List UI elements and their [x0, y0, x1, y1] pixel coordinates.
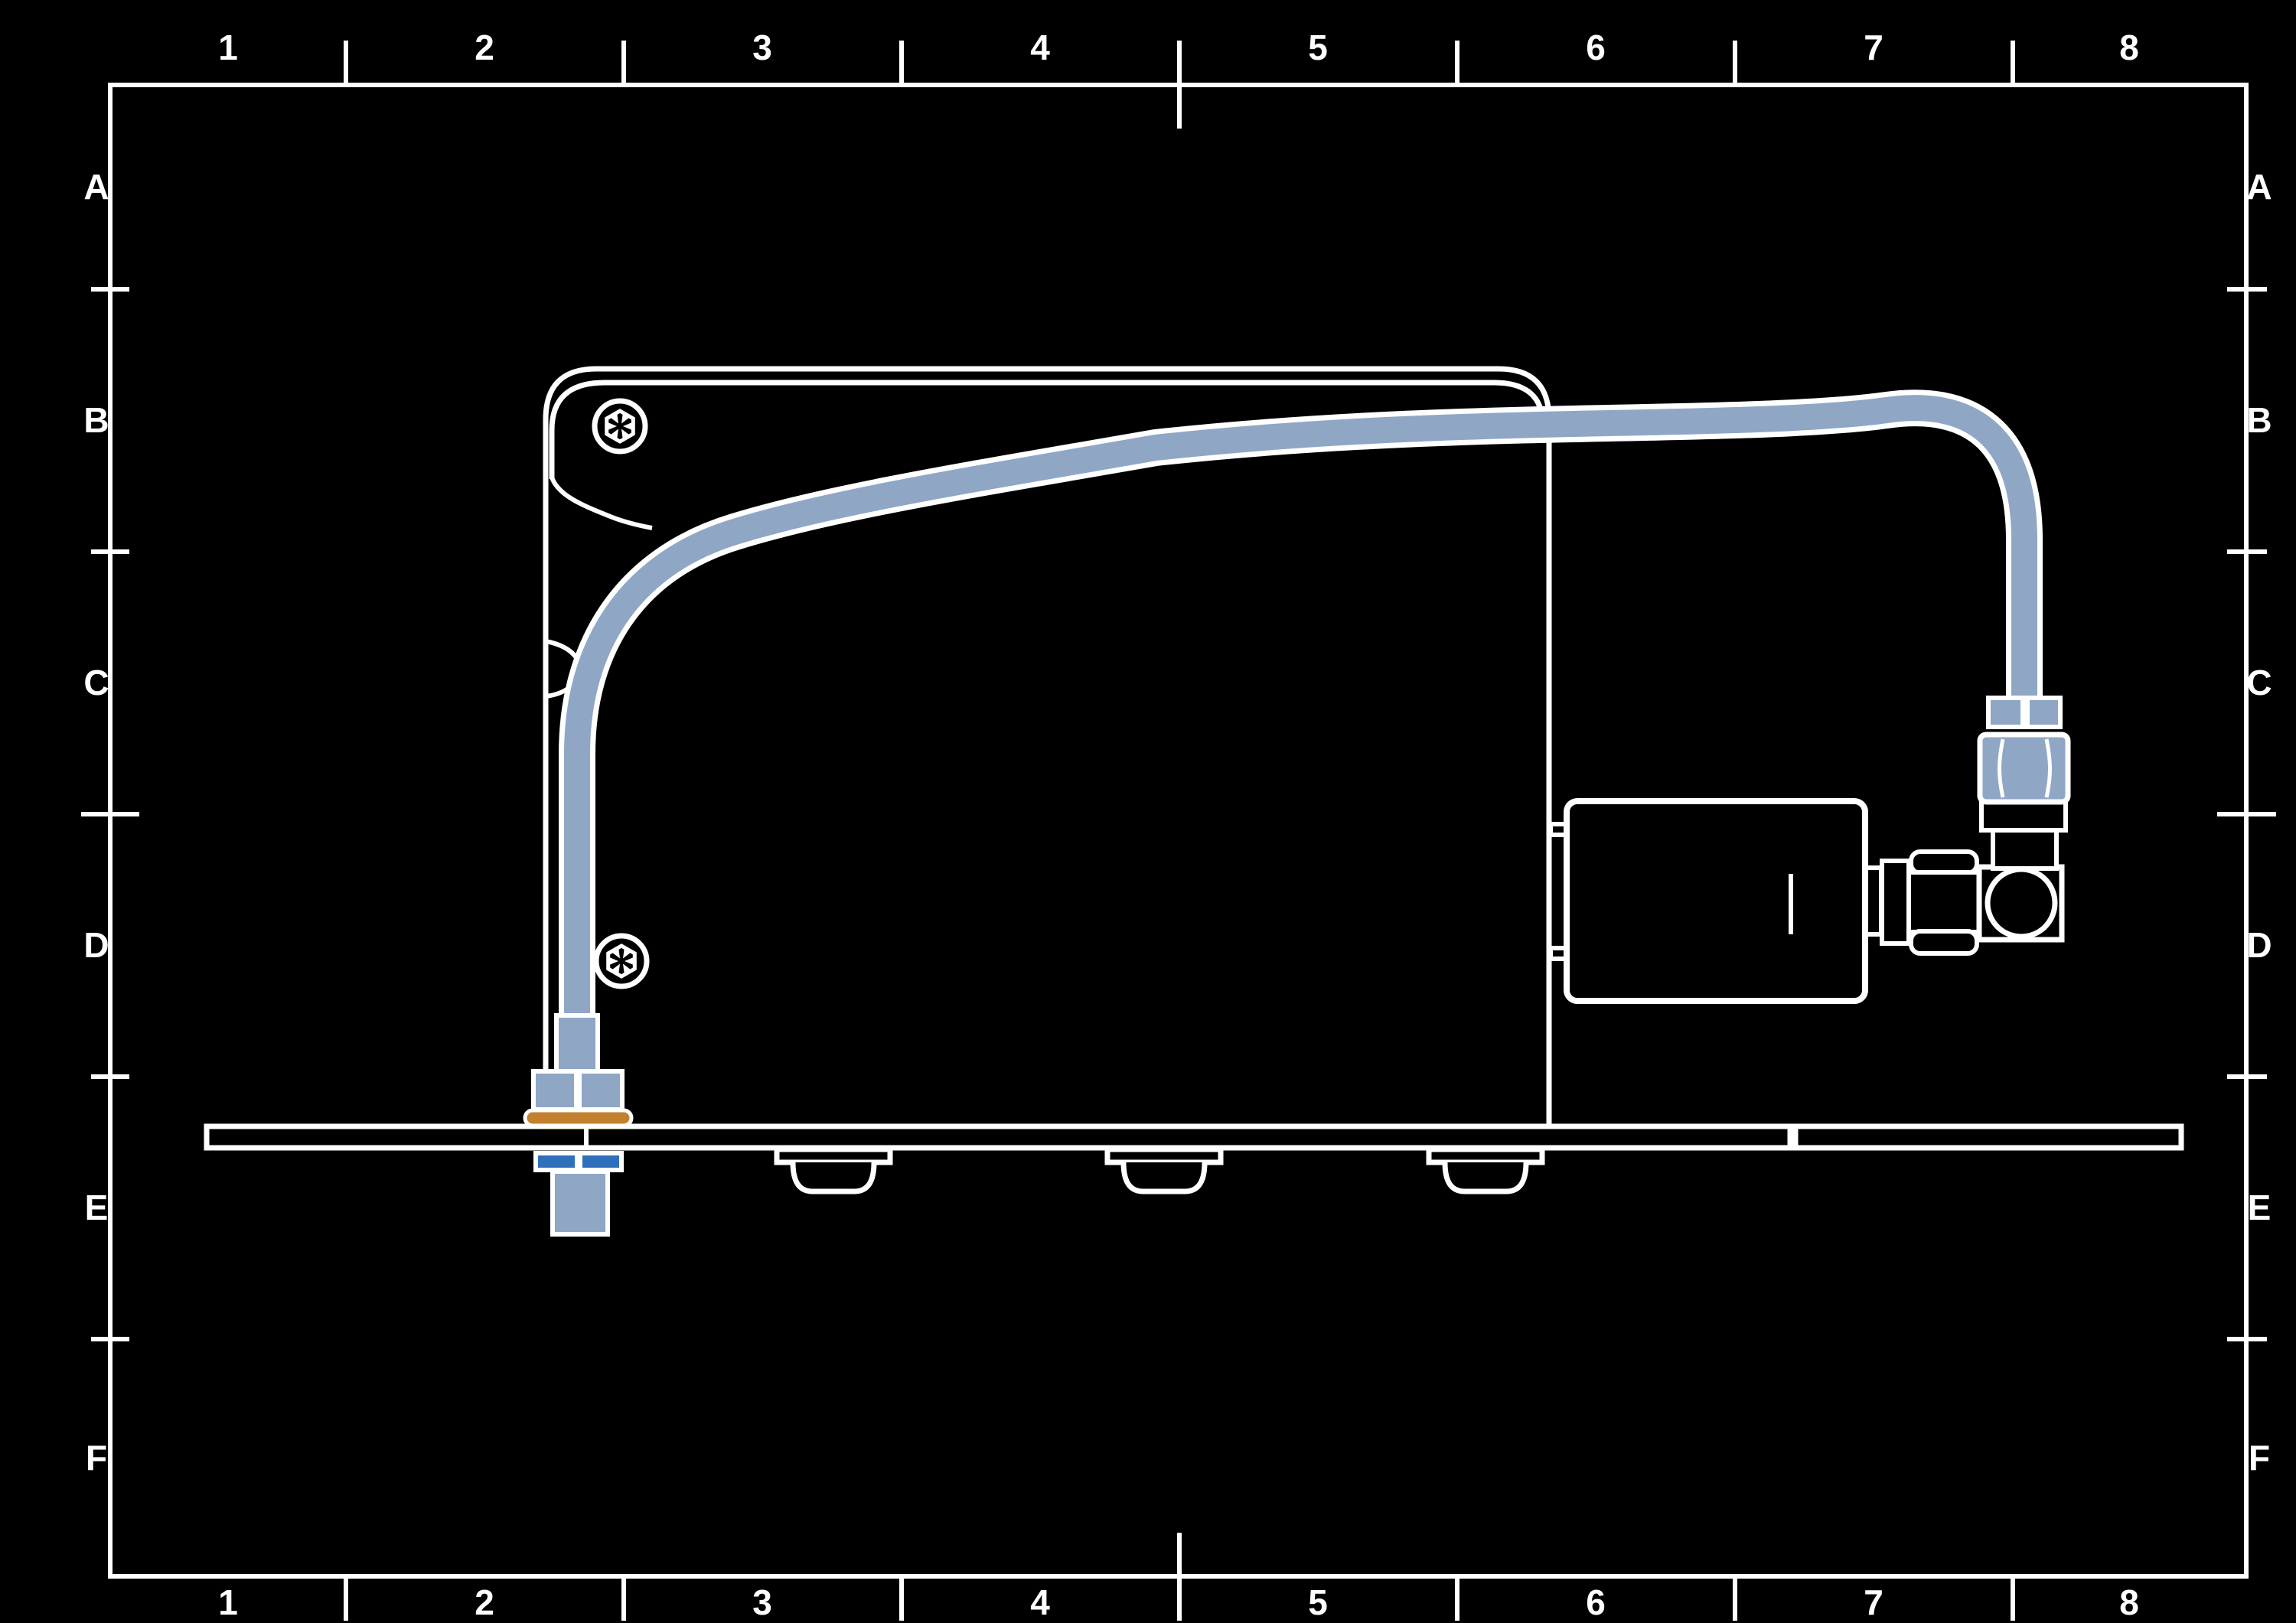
dome-cup	[1124, 1162, 1205, 1191]
mounting-plate	[207, 1126, 2181, 1148]
bulkhead-fitting	[525, 1015, 631, 1234]
grid-labels: 1122334455667788AABBCCDDEEFF	[83, 28, 2272, 1622]
port-flange	[1882, 861, 1909, 943]
grid-row-label-right: E	[2248, 1188, 2272, 1227]
dome-flange	[1429, 1149, 1542, 1162]
assembly-drawing	[207, 369, 2181, 1234]
grid-column-label-top: 1	[218, 28, 238, 67]
grid-row-label-left: D	[83, 925, 109, 965]
grid-row-label-right: D	[2246, 925, 2272, 965]
elbow-neck	[1993, 829, 2056, 869]
grid-row-label-right: B	[2246, 400, 2272, 440]
mounting-plate-left-segment	[207, 1126, 1790, 1148]
elbow-ferrule-left	[1988, 698, 2023, 727]
grid-column-label-bottom: 6	[1586, 1582, 1606, 1622]
lock-ring-right	[580, 1153, 621, 1170]
panel-screw-bottom	[596, 936, 647, 986]
grid-column-label-top: 2	[475, 28, 494, 67]
drawing-sheet: 1122334455667788AABBCCDDEEFF	[0, 0, 2296, 1623]
compression-nut-bottom-cap	[1911, 931, 1977, 953]
sheet-frame: 1122334455667788AABBCCDDEEFF	[81, 28, 2276, 1622]
panel-screw-top	[595, 401, 645, 451]
elbow-tube-hardware	[1980, 698, 2068, 802]
elbow-hex-nut	[1980, 735, 2068, 802]
compression-nut-body	[1909, 872, 1979, 932]
sealing-washer	[525, 1110, 631, 1126]
screw-head	[595, 401, 645, 451]
screw-head	[596, 936, 647, 986]
grid-column-label-bottom: 3	[752, 1582, 772, 1622]
grid-column-label-top: 3	[752, 28, 772, 67]
plate-dome-fittings	[777, 1149, 1542, 1191]
grid-column-label-bottom: 1	[218, 1582, 238, 1622]
inline-component-assembly	[1551, 801, 2066, 1001]
grid-row-label-right: C	[2246, 663, 2272, 702]
grid-row-label-left: E	[85, 1188, 109, 1227]
grid-column-label-bottom: 2	[475, 1582, 494, 1622]
grid-column-label-bottom: 7	[1864, 1582, 1883, 1622]
dome-flange	[1107, 1149, 1221, 1162]
component-box	[1567, 801, 1865, 1001]
grid-row-label-left: A	[83, 167, 109, 207]
bulkhead-lower-body	[553, 1172, 608, 1234]
dome-fitting-1	[777, 1149, 890, 1191]
dome-fitting-2	[1107, 1149, 1221, 1191]
dome-cup	[793, 1162, 874, 1191]
grid-column-label-top: 4	[1030, 28, 1050, 67]
box-port-stub	[1866, 868, 1881, 934]
elbow-collar	[1981, 802, 2066, 830]
grid-ticks	[81, 41, 2276, 1621]
grid-column-label-bottom: 4	[1030, 1582, 1050, 1622]
panel-screws	[595, 401, 647, 986]
dome-flange	[777, 1149, 890, 1162]
grid-column-label-top: 7	[1864, 28, 1883, 67]
grid-row-label-right: F	[2249, 1438, 2270, 1478]
dome-cup	[1445, 1162, 1526, 1191]
panel-edge-contour-upper	[552, 477, 652, 528]
lock-ring-left	[536, 1153, 577, 1170]
bulkhead-nut-left	[533, 1071, 576, 1110]
grid-column-label-top: 8	[2119, 28, 2139, 67]
grid-row-label-left: C	[83, 663, 109, 702]
elbow-ball	[1988, 869, 2055, 937]
elbow-ferrule-right	[2027, 698, 2060, 727]
mounting-plate-right-segment	[1795, 1126, 2181, 1148]
drawing-border	[110, 85, 2246, 1576]
grid-row-label-left: B	[83, 400, 109, 440]
bulkhead-nut-right	[579, 1071, 622, 1110]
grid-column-label-top: 5	[1308, 28, 1328, 67]
grid-row-label-left: F	[86, 1438, 107, 1478]
grid-column-label-bottom: 5	[1308, 1582, 1328, 1622]
compression-nut-top-cap	[1911, 852, 1977, 873]
bulkhead-body	[556, 1015, 598, 1073]
grid-row-label-right: A	[2246, 167, 2272, 207]
grid-column-label-bottom: 8	[2119, 1582, 2139, 1622]
grid-column-label-top: 6	[1586, 28, 1606, 67]
dome-fitting-3	[1429, 1149, 1542, 1191]
